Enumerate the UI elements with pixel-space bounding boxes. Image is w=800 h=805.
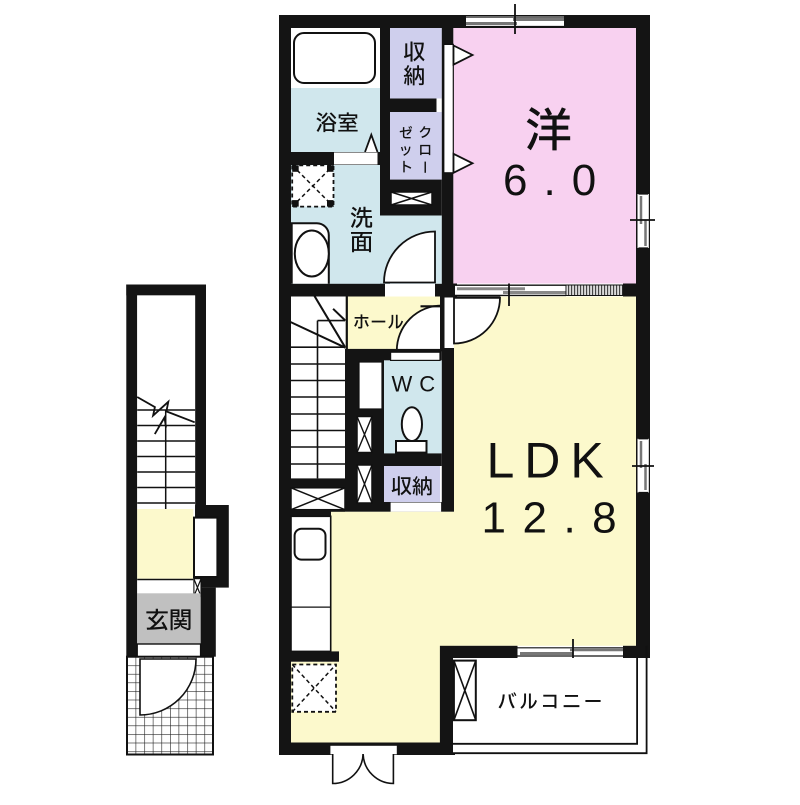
- svg-text:6.0: 6.0: [503, 156, 612, 205]
- svg-text:WC: WC: [392, 372, 443, 397]
- svg-text:12.8: 12.8: [482, 494, 634, 543]
- svg-text:LDK: LDK: [487, 433, 614, 489]
